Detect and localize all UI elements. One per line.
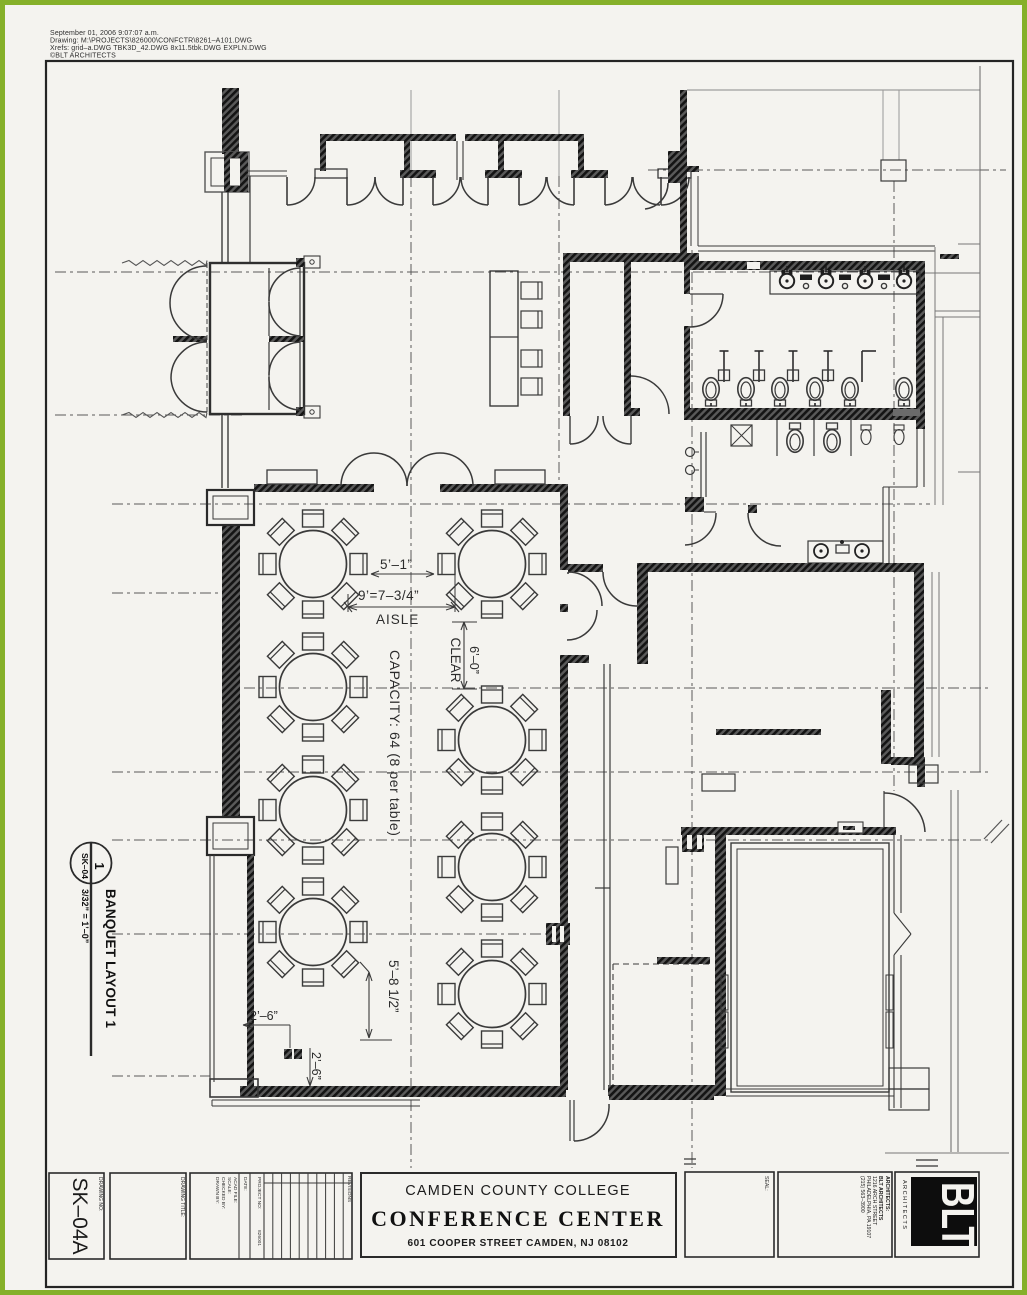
svg-text:AISLE: AISLE xyxy=(376,612,419,627)
svg-text:SK–04A: SK–04A xyxy=(68,1177,91,1254)
svg-text:CAMDEN COUNTY COLLEGE: CAMDEN COUNTY COLLEGE xyxy=(405,1183,631,1199)
svg-text:Drawing: M:\PROJECTS\826000\C: Drawing: M:\PROJECTS\826000\CONFCTR\8261… xyxy=(50,38,252,45)
svg-text:BANQUET LAYOUT 1: BANQUET LAYOUT 1 xyxy=(103,889,118,1029)
svg-text:DRAWING NO:: DRAWING NO: xyxy=(97,1177,103,1211)
svg-text:SCALE:: SCALE: xyxy=(226,1177,232,1194)
svg-text:2’–6”: 2’–6” xyxy=(309,1052,323,1080)
svg-text:1: 1 xyxy=(92,862,107,869)
svg-text:ARCHITECTS:: ARCHITECTS: xyxy=(884,1176,890,1211)
svg-text:DRAWING TITLE:: DRAWING TITLE: xyxy=(179,1177,185,1217)
svg-text:Xrefs: grid–a.DWG TBK3D_42.D: Xrefs: grid–a.DWG TBK3D_42.DWG 8x11.5tbk… xyxy=(50,45,267,52)
svg-text:5’–8 1/2”: 5’–8 1/2” xyxy=(386,960,401,1013)
svg-text:BLT: BLT xyxy=(932,1182,984,1248)
svg-text:3/32” = 1’–0”: 3/32” = 1’–0” xyxy=(80,889,90,943)
svg-text:September 01, 2006 9:07:07: September 01, 2006 9:07:07 a.m. xyxy=(50,30,159,37)
svg-text:REVISIONS: REVISIONS xyxy=(346,1176,352,1202)
svg-text:2’–6”: 2’–6” xyxy=(250,1009,278,1023)
svg-text:5’–1”: 5’–1” xyxy=(380,557,413,572)
svg-text:601 COOPER STREET CAMDEN,: 601 COOPER STREET CAMDEN, NJ 08102 xyxy=(407,1238,628,1249)
svg-text:826001: 826001 xyxy=(256,1230,262,1246)
svg-text:DRAWN BY:: DRAWN BY: xyxy=(214,1177,220,1204)
svg-text:©BLT ARCHITECTS: ©BLT ARCHITECTS xyxy=(50,52,116,60)
svg-text:A R C H I T E C T S: A R C H I T E C T S xyxy=(901,1180,907,1229)
svg-text:ACAD FILE:: ACAD FILE: xyxy=(232,1177,238,1203)
svg-text:SK–04: SK–04 xyxy=(80,853,90,879)
svg-text:SEAL:: SEAL: xyxy=(763,1176,769,1191)
svg-text:CLEAR: CLEAR xyxy=(448,637,463,682)
svg-text:CONFERENCE CENTER: CONFERENCE CENTER xyxy=(371,1206,665,1231)
svg-text:CHECKED BY:: CHECKED BY: xyxy=(220,1177,226,1209)
svg-text:(215) 563–3900: (215) 563–3900 xyxy=(859,1176,865,1213)
svg-text:6’–0”: 6’–0” xyxy=(467,646,481,674)
svg-text:DATE:: DATE: xyxy=(242,1177,248,1191)
svg-text:PROJECT NO:: PROJECT NO: xyxy=(256,1177,262,1209)
svg-text:CAPACITY: 64 (8 per table): CAPACITY: 64 (8 per table) xyxy=(387,650,403,837)
svg-text:9’=7–3/4”: 9’=7–3/4” xyxy=(358,588,419,603)
